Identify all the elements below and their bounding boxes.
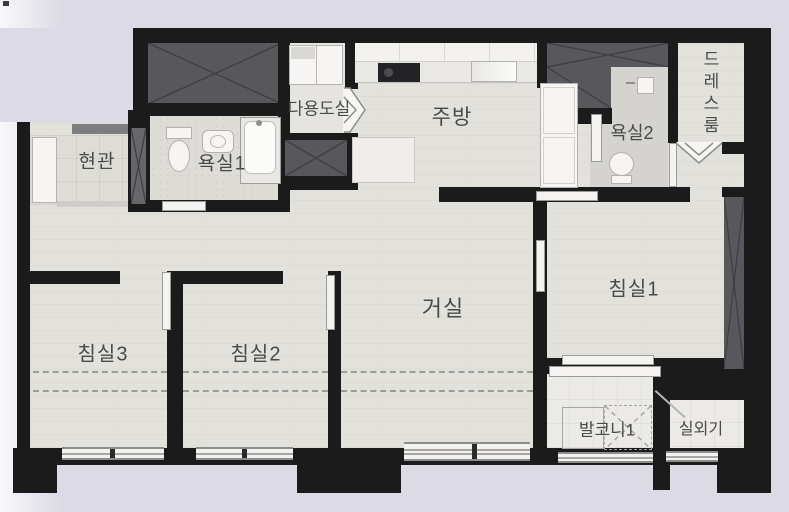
wall	[670, 374, 744, 400]
bathroom2-door-leaf	[591, 114, 602, 162]
hall-threshold	[536, 191, 598, 201]
extension-dashed-line	[341, 390, 533, 392]
bedroom1-window-sill	[562, 355, 654, 365]
washer-divider	[316, 46, 317, 84]
living-room-window	[404, 442, 530, 461]
wall-top	[133, 28, 771, 43]
floorplan: 현관 욕실1 다용도실 주방 욕실2 드레스룸 침실1 거실 침실2 침실3 발…	[0, 0, 789, 512]
toilet-tank	[611, 175, 632, 184]
extension-dashed-line	[183, 371, 328, 373]
bathroom1-label: 욕실1	[198, 149, 247, 176]
ac-unit-vent	[666, 451, 718, 462]
shoe-cabinet	[32, 137, 57, 203]
extension-dashed-line	[33, 390, 167, 392]
cabinet-door-line	[543, 87, 575, 134]
cooktop-burner	[384, 68, 393, 77]
entrance-label: 현관	[79, 147, 116, 174]
utility-lower-x-box	[285, 140, 347, 176]
bathtub-inner	[244, 121, 276, 174]
kitchen-shaft-bar	[547, 43, 669, 67]
extension-dashed-line	[183, 390, 328, 392]
wall-left	[17, 122, 30, 465]
bedroom2-door-leaf	[326, 275, 335, 330]
kitchen-sink	[471, 61, 517, 82]
utility-room-label: 다용도실	[288, 95, 351, 120]
kitchen-island	[352, 137, 415, 183]
entrance-step	[57, 201, 128, 207]
wall	[17, 271, 120, 284]
bedroom3-window	[62, 447, 164, 460]
wall-right	[744, 28, 771, 465]
bathtub-faucet	[256, 120, 262, 126]
extension-dashed-line	[33, 371, 167, 373]
wall	[183, 271, 283, 284]
wall-foot	[717, 448, 771, 493]
washer-panel	[291, 47, 315, 59]
bathroom2-label: 욕실2	[610, 119, 653, 145]
wall-foot	[13, 448, 57, 493]
wall	[537, 43, 547, 88]
wall	[133, 43, 148, 116]
toilet-bowl	[609, 152, 634, 176]
artifact-speck	[3, 1, 9, 6]
bedroom1-door-leaf	[536, 240, 545, 292]
toilet-tank	[166, 127, 192, 139]
bedroom1-label: 침실1	[609, 273, 660, 302]
balcony-window	[558, 452, 653, 463]
wall	[148, 103, 282, 116]
wall	[722, 142, 750, 154]
wall	[533, 202, 547, 448]
kitchen-label: 주방	[432, 101, 473, 131]
shaft-large-x-box	[148, 43, 282, 104]
bedroom3-label: 침실3	[78, 338, 129, 367]
balcony1-label: 발코니1	[579, 416, 635, 441]
dress-room-label: 드레스룸	[697, 50, 722, 154]
bathroom1-door-sill	[162, 201, 206, 211]
bedroom2-label: 침실2	[231, 338, 282, 367]
extension-dashed-line	[341, 371, 533, 373]
sink-basin	[210, 135, 226, 148]
wall-foot	[297, 448, 401, 493]
bedroom1-wardrobe	[724, 197, 744, 369]
cabinet-door-line	[543, 137, 575, 184]
wall	[128, 200, 290, 212]
bedroom3-door-leaf	[162, 272, 171, 330]
wall	[668, 43, 678, 143]
bedroom2-window	[196, 447, 293, 460]
wall	[722, 187, 750, 197]
entrance-duct	[131, 128, 146, 204]
kitchen-upper-cabinets	[355, 43, 537, 62]
bg-patch	[0, 28, 133, 122]
balcony-door-sill	[549, 366, 661, 377]
faucet-mark	[626, 82, 635, 84]
ac-outdoor-unit-label: 실외기	[679, 415, 723, 439]
sink	[637, 77, 654, 94]
living-room-label: 거실	[422, 291, 464, 323]
entrance-door	[72, 124, 128, 134]
